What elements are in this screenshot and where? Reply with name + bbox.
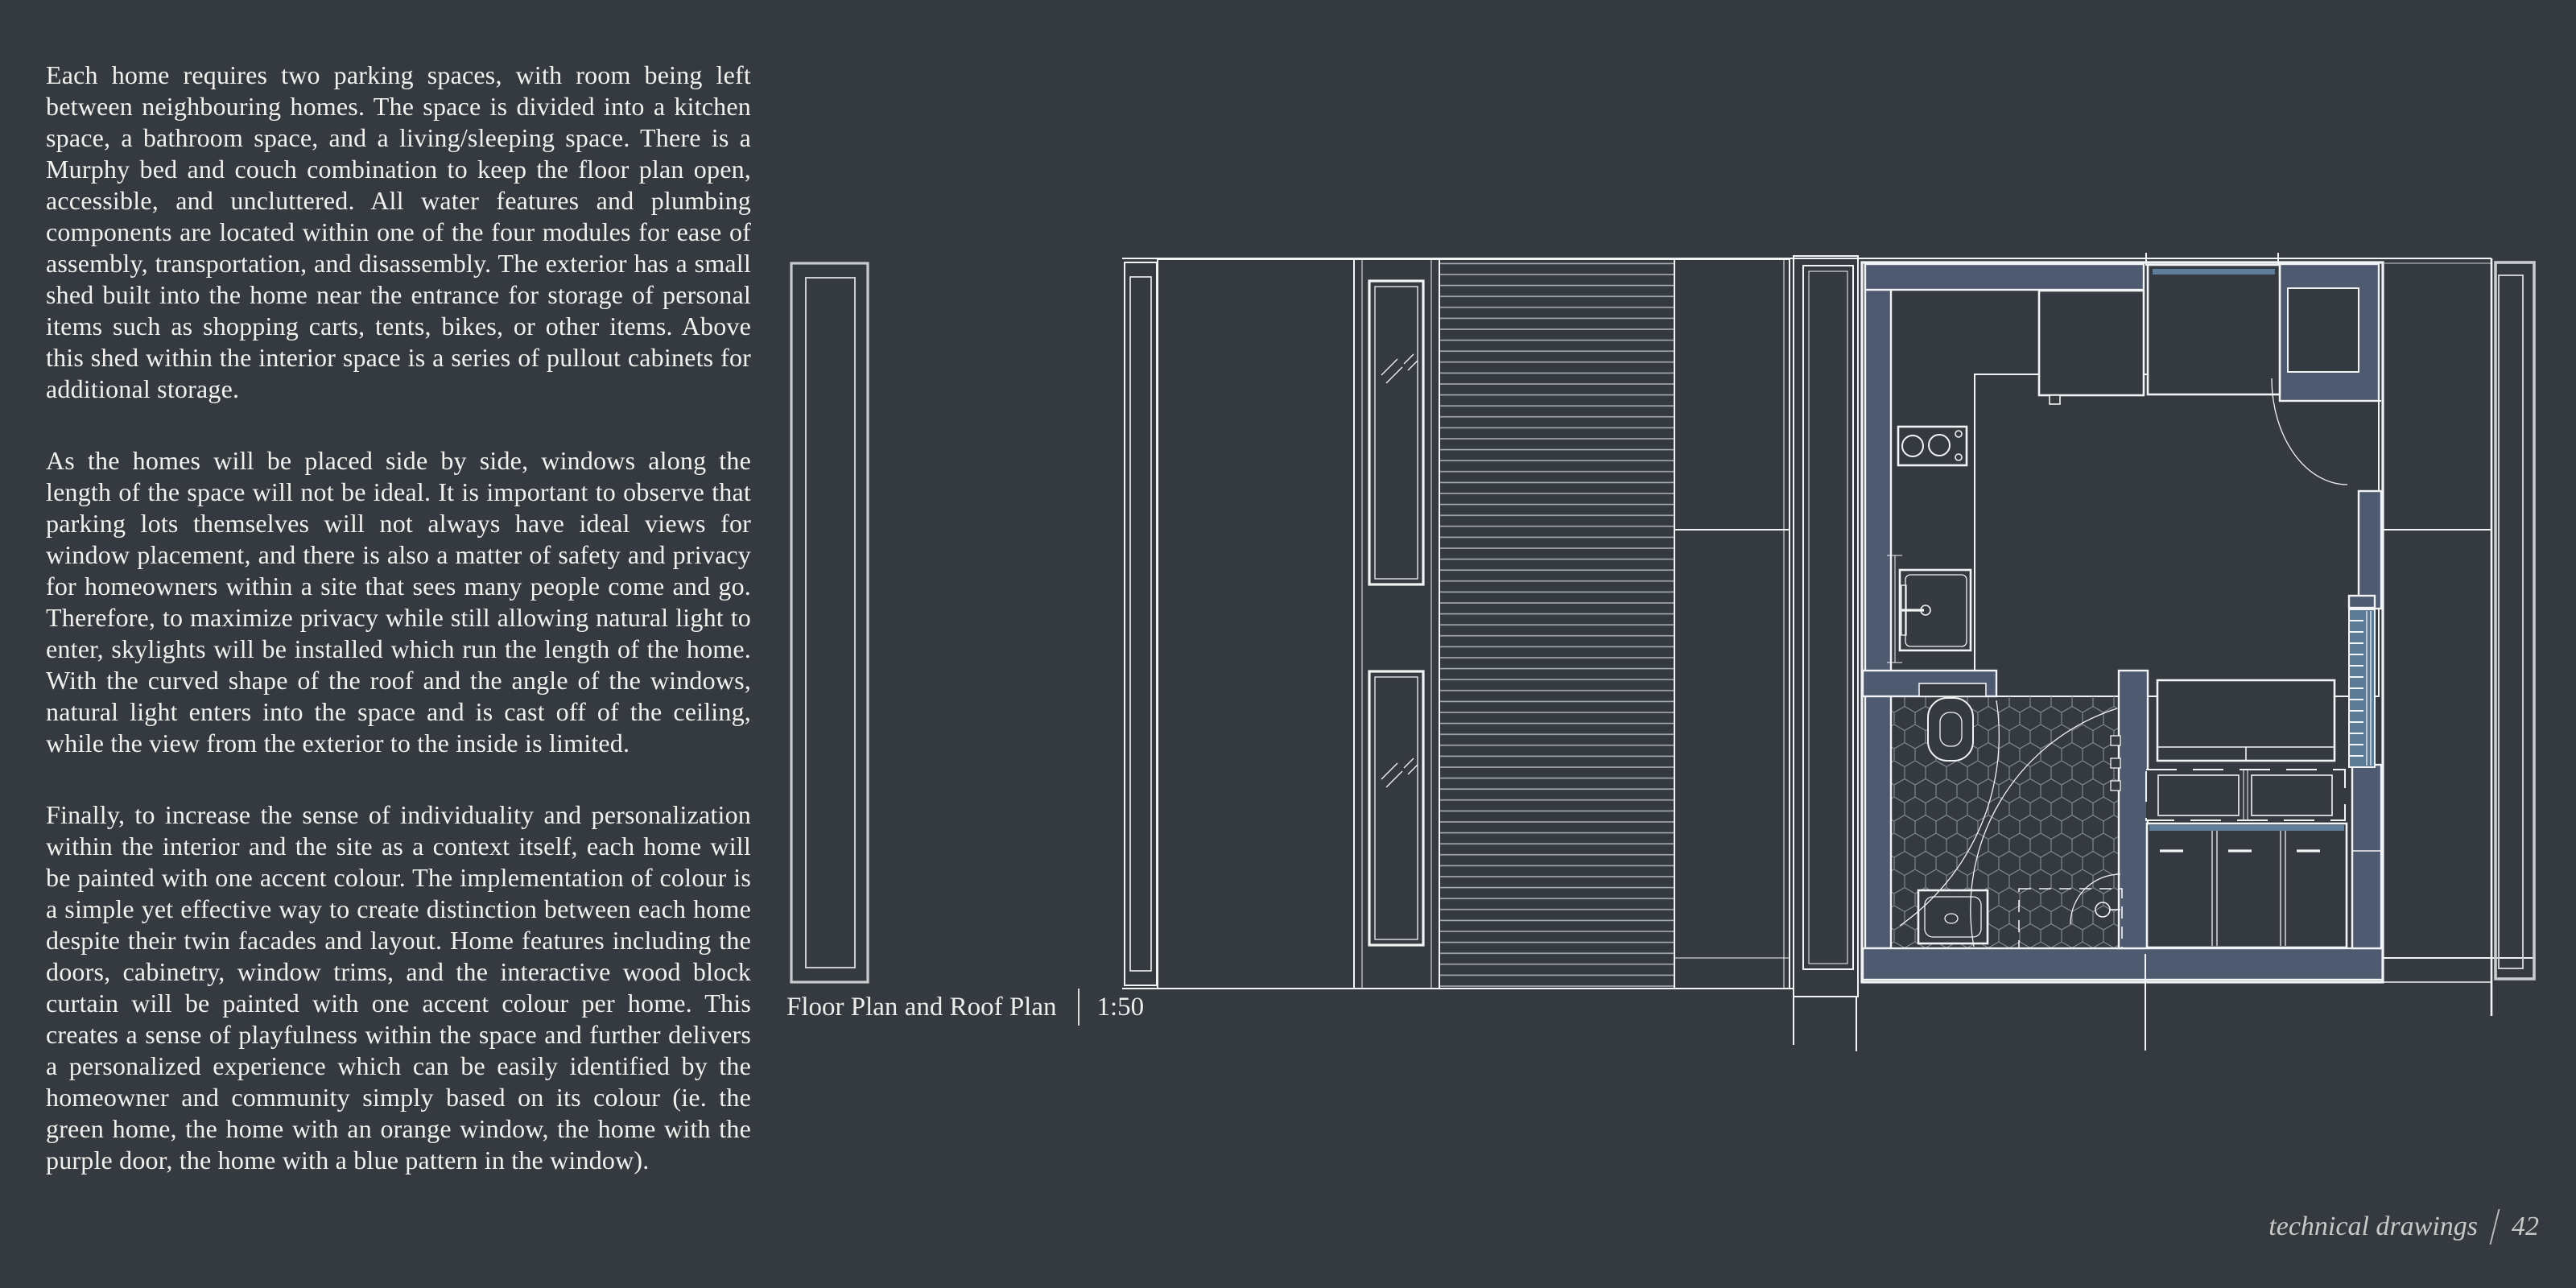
skylight-strip <box>1354 259 1439 989</box>
footer-section-label: technical drawings <box>2268 1212 2478 1242</box>
cabinet-accent-band <box>2149 825 2344 831</box>
wall-left <box>1865 264 1891 948</box>
section-strip-left <box>791 263 868 982</box>
portfolio-page: Each home requires two parking spaces, w… <box>0 0 2576 1288</box>
page-footer: technical drawings 42 <box>2268 1209 2539 1245</box>
floor-plan <box>1862 253 2383 1051</box>
couch <box>2157 680 2334 761</box>
hinge-plates <box>2111 736 2120 791</box>
roof-flat-panel <box>1674 259 1790 989</box>
footer-separator <box>2490 1209 2500 1245</box>
murphy-bed-folded <box>2146 770 2345 820</box>
stove-icon <box>1898 427 1967 465</box>
wall-right-mid <box>2359 491 2381 609</box>
skylight-window-1 <box>1369 281 1423 584</box>
technical-drawing <box>0 0 2576 1288</box>
wall-right-low <box>2352 765 2381 948</box>
wall-bottom <box>1863 948 2383 980</box>
roof-decking-right <box>1439 259 1674 989</box>
murphy-bed-module <box>2146 680 2347 947</box>
roof-decking-left <box>1158 259 1354 989</box>
roof-edge-strip <box>1125 262 1157 985</box>
closet-accent-band <box>2153 269 2275 275</box>
wardrobe-cabinet <box>2147 824 2347 947</box>
block-curtain-window <box>2349 596 2375 767</box>
door-stop <box>2050 395 2060 404</box>
wall-bathroom-side <box>2119 671 2148 948</box>
skylight-window-2 <box>1369 671 1423 945</box>
kitchen <box>1887 427 1971 663</box>
drawing-caption: Floor Plan and Roof Plan 1:50 <box>786 989 1144 1026</box>
wood-herringbone-floor <box>1975 374 2379 696</box>
closet-left <box>2039 291 2144 395</box>
entry-annex <box>2383 258 2534 1016</box>
wall-top <box>1865 264 2144 290</box>
caption-separator <box>1078 989 1080 1026</box>
bathroom-sink-icon <box>1918 890 1988 943</box>
shower-unit <box>1887 555 1971 663</box>
closet-right <box>2288 288 2359 372</box>
module-strip <box>1794 256 1858 997</box>
closet-center <box>2148 265 2280 394</box>
section-strip-right <box>2495 262 2534 979</box>
caption-scale: 1:50 <box>1097 993 1145 1022</box>
caption-title: Floor Plan and Roof Plan <box>786 993 1057 1022</box>
footer-page-number: 42 <box>2512 1212 2539 1242</box>
